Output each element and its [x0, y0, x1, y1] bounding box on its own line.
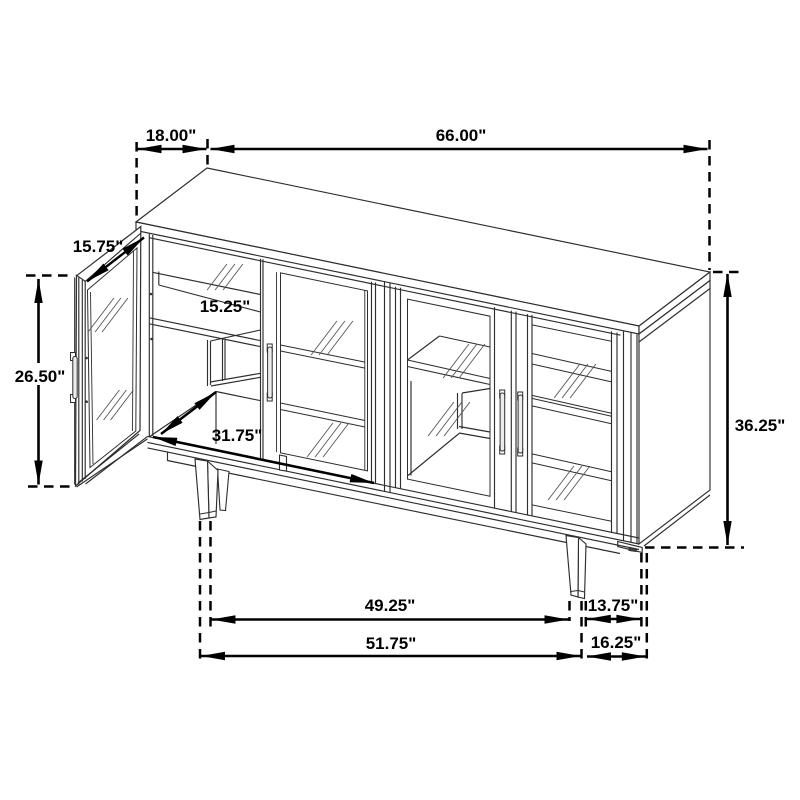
svg-text:18.00": 18.00" [146, 126, 197, 145]
svg-text:49.25": 49.25" [365, 596, 416, 615]
svg-text:16.25": 16.25" [591, 633, 642, 652]
svg-text:26.50": 26.50" [15, 367, 66, 386]
svg-text:15.25": 15.25" [200, 297, 251, 316]
svg-text:31.75": 31.75" [212, 426, 263, 445]
svg-text:36.25": 36.25" [735, 416, 786, 435]
svg-text:13.75": 13.75" [588, 596, 639, 615]
svg-text:51.75": 51.75" [366, 634, 417, 653]
svg-text:66.00": 66.00" [436, 126, 487, 145]
svg-text:15.75": 15.75" [73, 237, 124, 256]
